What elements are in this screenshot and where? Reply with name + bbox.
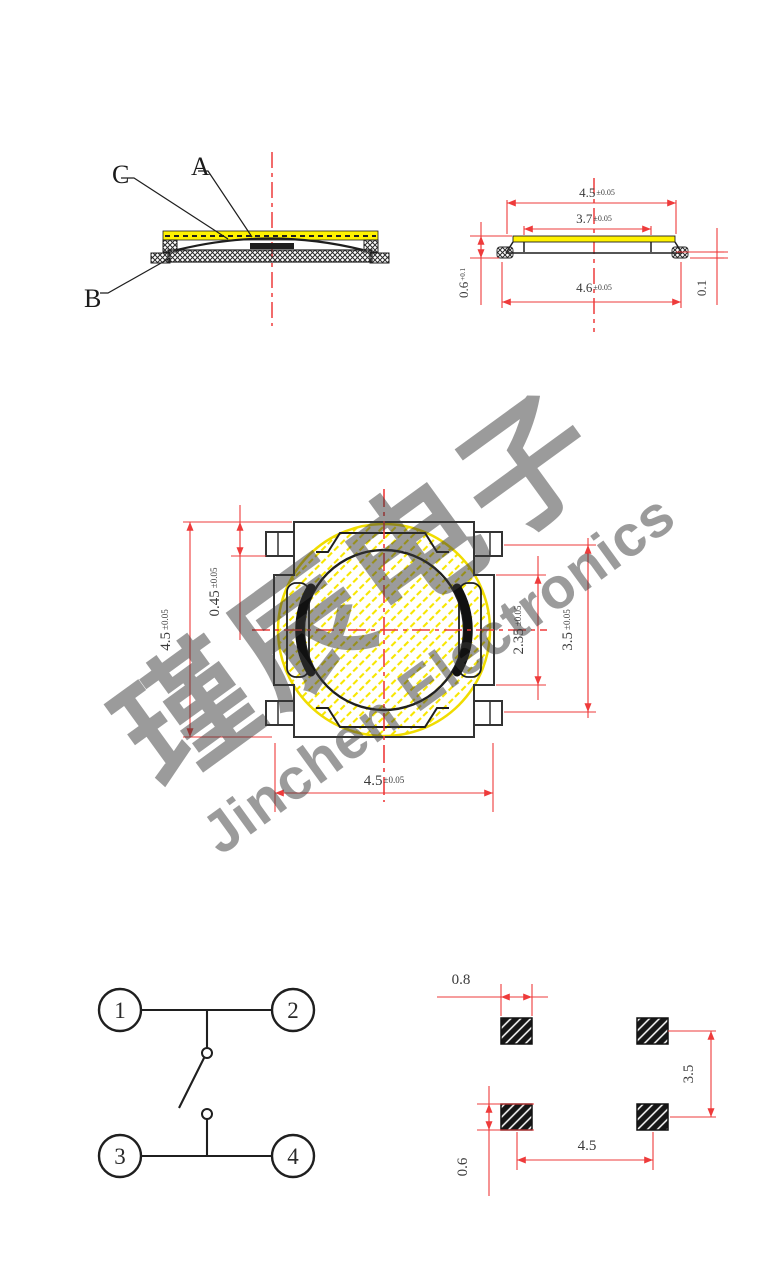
dim-land-vertical-pitch: 3.5 (681, 1065, 697, 1084)
leader-b (100, 258, 170, 293)
side-foot-left (497, 247, 513, 258)
label-b: B (84, 284, 101, 313)
dim-lines-pad-width (437, 984, 548, 1016)
label-a: A (191, 152, 210, 181)
pad-bottom-left (501, 1104, 532, 1130)
schematic-pin3-number: 3 (114, 1144, 126, 1169)
datasheet-page: C A B 4.5±0.05 3.7±0.05 4.6±0.05 (0, 0, 772, 1281)
dim-land-pad-height: 0.6 (455, 1157, 471, 1176)
dim-side-foot-thickness: 0.1 (694, 280, 709, 296)
dim-lines-inner-width (524, 226, 651, 235)
technical-drawing-canvas: C A B 4.5±0.05 3.7±0.05 4.6±0.05 (0, 0, 772, 1281)
side-tape (513, 236, 675, 242)
schematic-view: 1 2 3 4 (99, 989, 314, 1177)
section-foot-right (370, 253, 389, 263)
schematic-pin1-number: 1 (114, 998, 126, 1023)
section-view: C A B (84, 152, 389, 326)
schematic-pin4-number: 4 (287, 1144, 299, 1169)
land-pattern-view: 0.8 3.5 4.5 0.6 (437, 972, 716, 1196)
side-view: 4.5±0.05 3.7±0.05 4.6±0.05 0.6+0.1 (456, 178, 728, 332)
schematic-pin2-number: 2 (287, 998, 299, 1023)
pad-bottom-right (637, 1104, 668, 1130)
pad-top-right (637, 1018, 668, 1044)
pad-top-left (501, 1018, 532, 1044)
pin-bottom-right (474, 701, 502, 725)
schematic-wires (141, 1010, 272, 1156)
leader-c (121, 178, 228, 239)
watermark: 瑾辰电子 Jinchen Electronics (92, 365, 687, 867)
label-c: C (112, 160, 129, 189)
section-foot-left (151, 253, 170, 263)
dim-lines-height (470, 222, 512, 305)
dim-land-horizontal-pitch: 4.5 (578, 1138, 597, 1154)
section-contact-bump (250, 243, 294, 249)
schematic-lever (179, 1058, 204, 1108)
section-base (168, 250, 372, 262)
schematic-contact-top (202, 1048, 212, 1058)
dim-land-pad-width: 0.8 (452, 972, 471, 988)
schematic-contact-bottom (202, 1109, 212, 1119)
dim-side-top-width: 4.5±0.05 (579, 185, 615, 200)
dim-lines-pad-height (477, 1086, 534, 1196)
dim-side-height: 0.6+0.1 (456, 268, 471, 298)
